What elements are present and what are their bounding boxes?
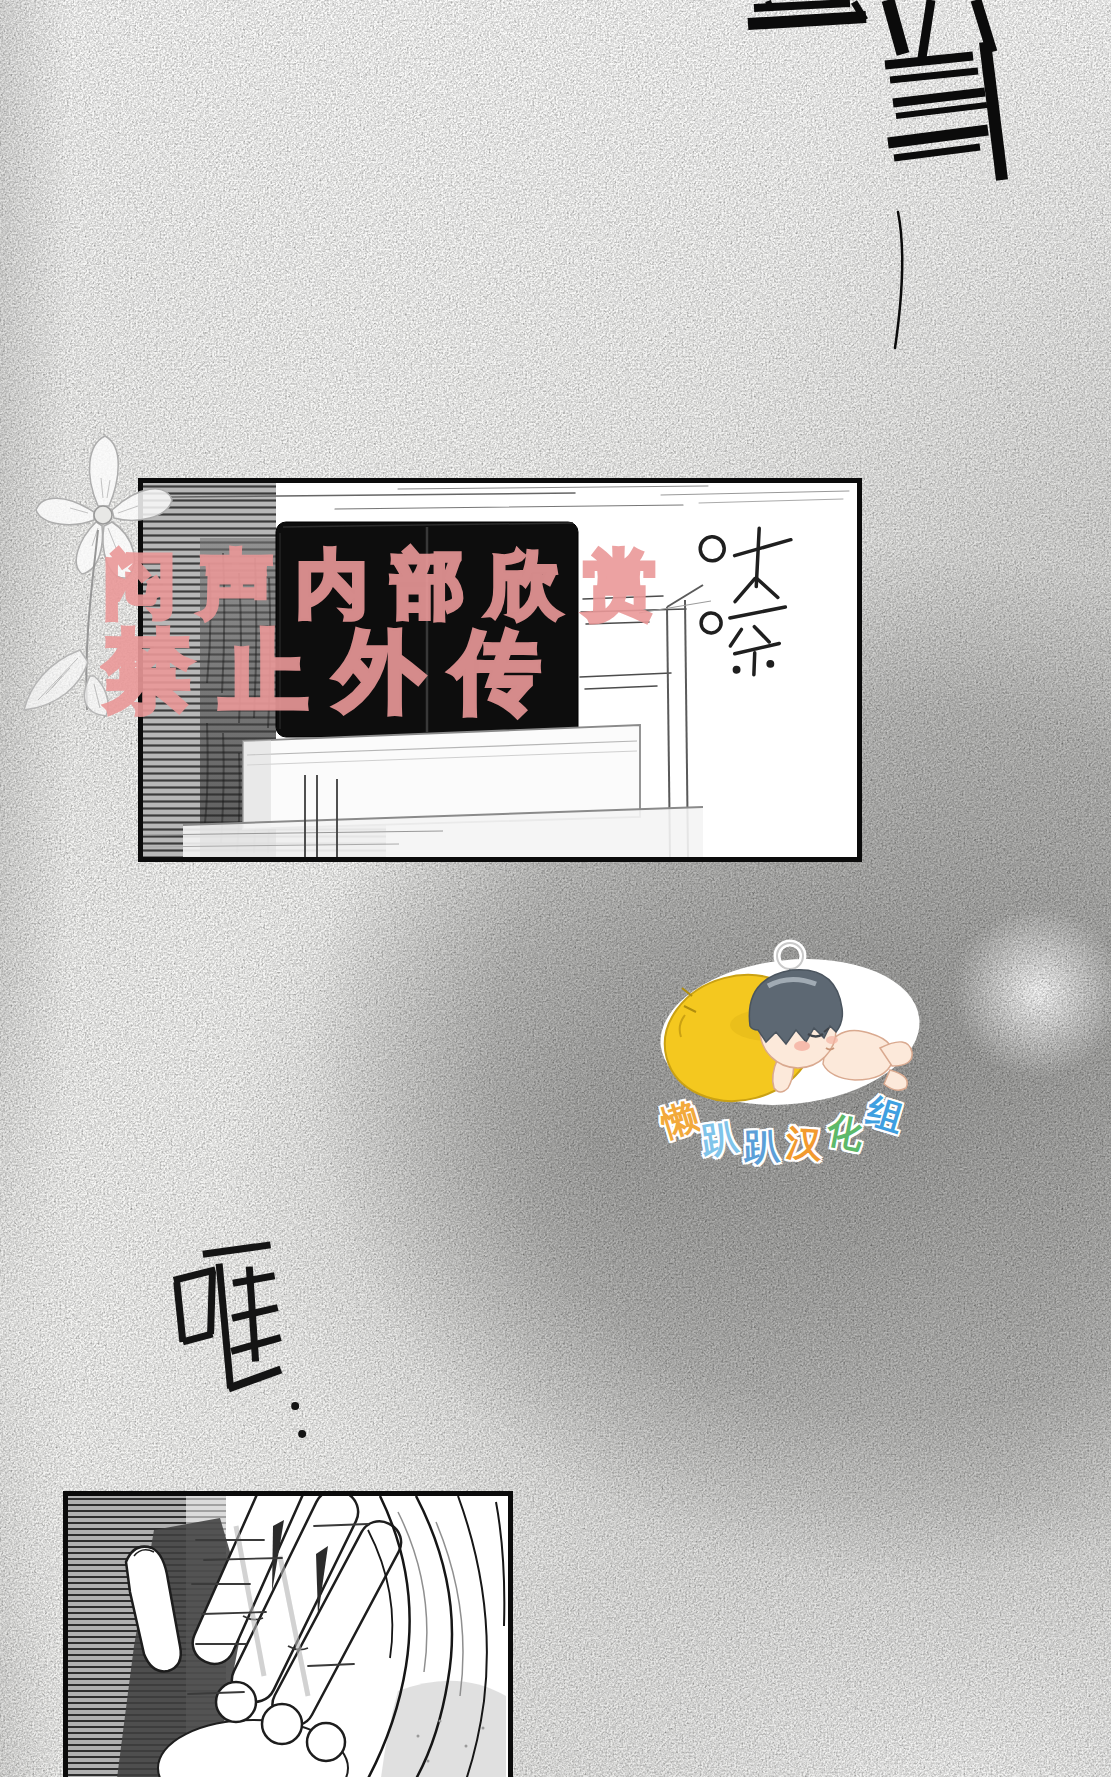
scanlation-sticker: 懒趴趴汉化组 xyxy=(640,930,940,1185)
watermark-line2: 禁止外传 xyxy=(104,628,680,716)
clang-sfx-drawing xyxy=(160,1238,320,1453)
logo-text: 懒趴趴汉化组 xyxy=(640,930,940,1185)
logo-char: 组 xyxy=(861,1087,910,1144)
logo-char: 汉 xyxy=(784,1119,823,1170)
panel-bottom xyxy=(63,1491,513,1777)
watermark: 闷声内部欣赏 禁止外传 xyxy=(104,548,680,716)
logo-char: 趴 xyxy=(698,1112,741,1166)
flower-center xyxy=(94,506,112,524)
logo-char: 趴 xyxy=(743,1122,781,1172)
flower-leaves xyxy=(24,650,108,716)
clang-sfx: 哐 ·· xyxy=(160,1238,320,1453)
shutter-sfx: 咔嚓 xyxy=(693,517,803,685)
brush-stroke-drawing xyxy=(738,0,1023,355)
brush-stroke-sfx: 当当 xyxy=(738,0,1023,355)
logo-char: 懒 xyxy=(656,1092,705,1149)
manga-page: 当当 xyxy=(0,0,1111,1777)
shutter-sfx-drawing xyxy=(693,517,803,685)
panel-bottom-artwork xyxy=(68,1496,506,1777)
watermark-line1: 闷声内部欣赏 xyxy=(104,548,680,620)
